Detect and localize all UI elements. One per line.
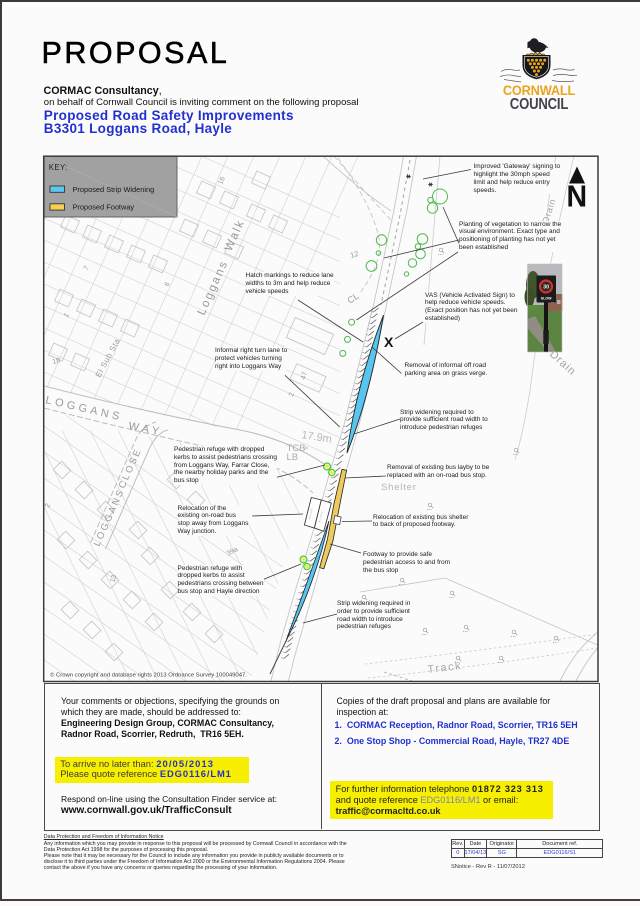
svg-text:Proposed Footway: Proposed Footway: [73, 203, 135, 212]
svg-text:LOGGANS: LOGGANS: [44, 394, 124, 423]
svg-text:2: 2: [288, 392, 296, 398]
svg-text:CL: CL: [345, 291, 360, 306]
svg-text:39a: 39a: [226, 546, 240, 558]
svg-text:∞: ∞: [303, 445, 308, 452]
svg-text:Proposed Strip Widening: Proposed Strip Widening: [73, 185, 155, 194]
svg-text:1: 1: [63, 312, 71, 319]
svg-text:12: 12: [349, 249, 359, 260]
svg-text:SLOW: SLOW: [541, 297, 552, 301]
svg-text:El Sub Sta: El Sub Sta: [94, 337, 122, 379]
svg-text:© Crown copyright and database: © Crown copyright and database rights 20…: [50, 672, 247, 679]
svg-text:Shelter: Shelter: [381, 482, 417, 493]
svg-text:30: 30: [543, 285, 549, 291]
svg-text:KEY:: KEY:: [49, 163, 68, 172]
svg-text:6: 6: [164, 281, 172, 288]
svg-text:Drain: Drain: [547, 348, 578, 378]
svg-text:2: 2: [44, 503, 52, 509]
svg-text:16: 16: [217, 176, 226, 186]
svg-text:CLOSE: CLOSE: [117, 446, 145, 490]
svg-text:WAY: WAY: [127, 420, 163, 438]
svg-text:7: 7: [83, 265, 91, 272]
svg-text:LB: LB: [287, 452, 299, 463]
svg-text:X: X: [384, 334, 394, 350]
svg-text:N: N: [567, 179, 588, 213]
